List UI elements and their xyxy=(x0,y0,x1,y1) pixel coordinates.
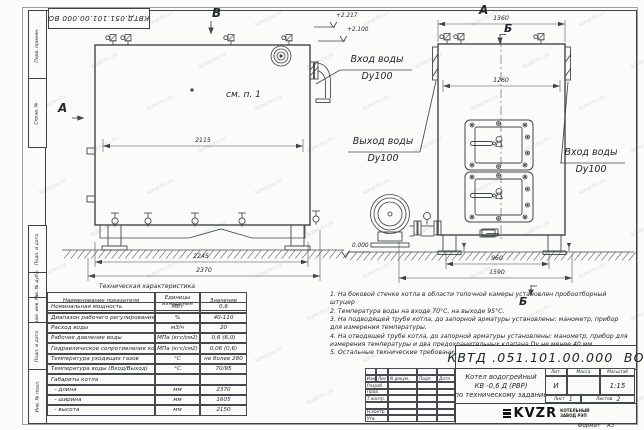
grid-cell xyxy=(437,389,455,396)
grid-cell xyxy=(365,368,376,375)
format-label: Формат А3 xyxy=(560,423,632,429)
table-cell: не более 280 xyxy=(200,354,247,364)
document-code-text: КВТД .051.101.00.000 ВО xyxy=(447,350,644,365)
grid-cell xyxy=(376,368,388,375)
technical-note: 2. Температура воды на входе 70°С, на вы… xyxy=(330,308,632,316)
table-cell: Гидравлическое сопротивление котла xyxy=(47,343,155,353)
inlet-top-dn: Dy100 xyxy=(341,71,413,82)
table-cell: мм xyxy=(155,405,200,415)
grid-cell xyxy=(437,395,455,402)
table-cell: м3/ч xyxy=(155,323,200,333)
grid-cell xyxy=(437,368,455,375)
elevation-mark-2217: +2.217 xyxy=(336,13,357,19)
grid-cell xyxy=(388,395,417,402)
view-marker-a-left: А xyxy=(58,101,67,115)
kvzr-logo-text: KVZR xyxy=(514,406,558,421)
grid-cell xyxy=(388,402,417,409)
table-cell: 70/95 xyxy=(200,364,247,374)
titleblock-revision-grid: Изм.ЛистN докум.Подп.ДатаРазраб.Пров.Т.к… xyxy=(365,368,455,422)
grid-cell: Разраб. xyxy=(365,382,388,389)
grid-cell xyxy=(437,382,455,389)
view-marker-v: В xyxy=(212,6,221,20)
sheets-cell: Листов 2 xyxy=(581,395,635,403)
see-note-callout: см. п. 1 xyxy=(226,90,261,100)
scale-value: 1:15 xyxy=(600,376,635,395)
sheet-cell: Лист 1 xyxy=(545,395,581,403)
tech-table: Наименование показателяЕдиницыизмеренияЗ… xyxy=(47,292,247,416)
table-cell: % xyxy=(155,313,200,323)
titleblock-logo-cell: KVZR КОТЕЛЬНЫЙ ЗАВОД РЭП xyxy=(455,403,637,424)
sheets-value: 2 xyxy=(616,396,620,403)
table-cell: мм xyxy=(155,385,200,395)
table-cell: Рабочее давление воды xyxy=(47,333,155,343)
grid-cell xyxy=(388,409,417,416)
grid-cell xyxy=(388,382,417,389)
mass-header: Масса xyxy=(567,368,600,376)
table-cell: 0,06 (0,6) xyxy=(200,343,247,353)
dim-1360: 1360 xyxy=(479,15,523,22)
technical-note: 3. На подводящей трубе котла, до запорно… xyxy=(330,316,632,332)
table-cell: 2370 xyxy=(200,385,247,395)
table-cell: МВт xyxy=(155,302,200,312)
tech-table-title: Техническая характеристика xyxy=(47,283,247,290)
titleblock-lit-mass-scale: Лит. Масса Масштаб И 1:15 xyxy=(545,368,635,395)
product-name-line3: по техническому задание xyxy=(455,391,548,400)
kvzr-logo-icon xyxy=(503,409,511,419)
table-cell: МПа (кгс/см2) xyxy=(155,333,200,343)
titleblock-sheet-row: Лист 1 Листов 2 xyxy=(545,395,635,403)
scale-header: Масштаб xyxy=(600,368,635,376)
kvzr-logo-subtext: КОТЕЛЬНЫЙ ЗАВОД РЭП xyxy=(560,409,589,419)
titleblock-name-cell: Котел водогрейный КВ -0,6 Д (РВР) по тех… xyxy=(455,368,547,405)
grid-cell: Лист xyxy=(376,375,388,382)
product-name-line2: КВ -0,6 Д (РВР) xyxy=(475,382,528,391)
mass-value xyxy=(567,376,600,395)
grid-cell: Пров. xyxy=(365,389,388,396)
grid-cell xyxy=(437,402,455,409)
product-name-line1: Котел водогрейный xyxy=(465,373,536,382)
table-cell: - длина xyxy=(47,385,155,395)
table-cell: Диапазон рабочего регулирования xyxy=(47,313,155,323)
dim-1260: 1260 xyxy=(479,77,523,84)
grid-cell xyxy=(437,409,455,416)
table-cell: 40-110 xyxy=(200,313,247,323)
lit-header: Лит. xyxy=(545,368,567,376)
table-cell: - высота xyxy=(47,405,155,415)
table-cell: МПа (кгс/см2) xyxy=(155,343,200,353)
table-cell: - ширина xyxy=(47,395,155,405)
table-cell: 0,6 (6,0) xyxy=(200,333,247,343)
grid-cell xyxy=(437,415,455,422)
sheet-label: Лист xyxy=(554,397,565,402)
grid-cell xyxy=(388,415,417,422)
grid-cell: Изм. xyxy=(365,375,376,382)
inlet-top-label: Вход воды xyxy=(341,54,413,65)
table-cell: 0,6 xyxy=(200,302,247,312)
grid-cell xyxy=(417,415,437,422)
technical-note: 1. На боковой стенке котла в области топ… xyxy=(330,291,632,307)
grid-cell: Т.контр. xyxy=(365,395,388,402)
view-marker-b-top: Б xyxy=(504,22,512,35)
table-cell: 20 xyxy=(200,323,247,333)
table-cell: мм xyxy=(155,395,200,405)
grid-cell xyxy=(417,389,437,396)
grid-cell xyxy=(417,382,437,389)
dim-2245: 2245 xyxy=(179,253,223,260)
table-cell: Температура воды (Вход/Выход) xyxy=(47,364,155,374)
table-cell: Температура уходящих газов xyxy=(47,354,155,364)
elevation-mark-zero: 0.000 xyxy=(352,243,369,249)
table-cell: Номинальная мощность xyxy=(47,302,155,312)
grid-cell: Подп. xyxy=(417,375,437,382)
table-cell: °С xyxy=(155,354,200,364)
outlet-label: Выход воды xyxy=(345,136,421,147)
elevation-mark-2100: +2.100 xyxy=(347,27,368,33)
grid-cell: Утв. xyxy=(365,415,388,422)
grid-cell xyxy=(417,409,437,416)
dim-2370: 2370 xyxy=(182,267,226,274)
table-cell: 2150 xyxy=(200,405,247,415)
table-cell: 1605 xyxy=(200,395,247,405)
inlet-right-label: Вход воды xyxy=(554,147,628,158)
sheets-label: Листов xyxy=(596,397,612,402)
grid-cell: Дата xyxy=(437,375,455,382)
grid-cell xyxy=(388,368,417,375)
grid-cell xyxy=(417,368,437,375)
table-cell xyxy=(155,374,200,384)
dim-2115: 2115 xyxy=(181,137,225,144)
dim-960: 960 xyxy=(475,255,519,262)
sheet-value: 1 xyxy=(569,396,573,403)
outlet-dn: Dy100 xyxy=(345,153,421,164)
grid-cell xyxy=(417,395,437,402)
grid-cell: Н.контр. xyxy=(365,409,388,416)
grid-cell: N докум. xyxy=(388,375,417,382)
titleblock-document-code: КВТД .051.101.00.000 ВО xyxy=(455,345,637,370)
lit-value: И xyxy=(545,376,567,395)
grid-cell xyxy=(417,402,437,409)
grid-cell xyxy=(388,389,417,396)
table-cell: Габариты котла xyxy=(47,374,155,384)
table-cell xyxy=(200,374,247,384)
dim-1590: 1590 xyxy=(475,269,519,276)
inlet-right-dn: Dy100 xyxy=(554,164,628,175)
table-cell: °С xyxy=(155,364,200,374)
grid-cell xyxy=(365,402,388,409)
table-cell: Расход воды xyxy=(47,323,155,333)
